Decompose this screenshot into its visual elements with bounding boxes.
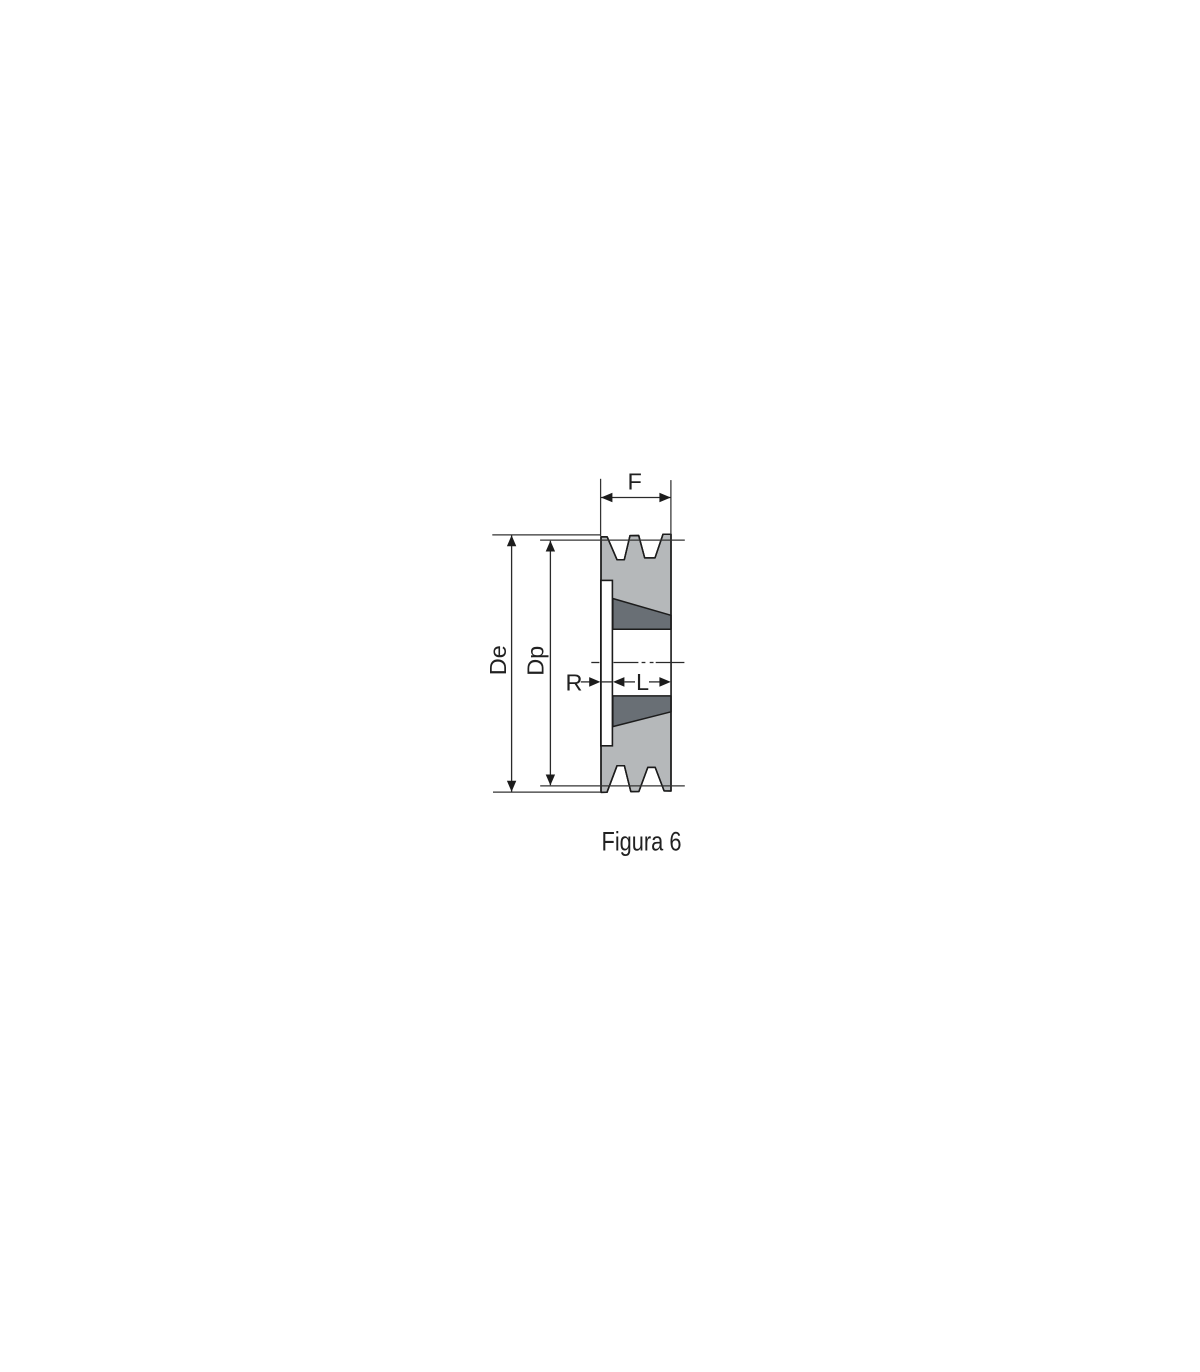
svg-text:R: R — [566, 670, 583, 696]
svg-text:Dp: Dp — [523, 646, 549, 676]
svg-text:L: L — [636, 669, 649, 695]
svg-text:De: De — [485, 645, 511, 675]
svg-text:Figura 6: Figura 6 — [602, 827, 682, 857]
svg-text:F: F — [628, 469, 642, 495]
